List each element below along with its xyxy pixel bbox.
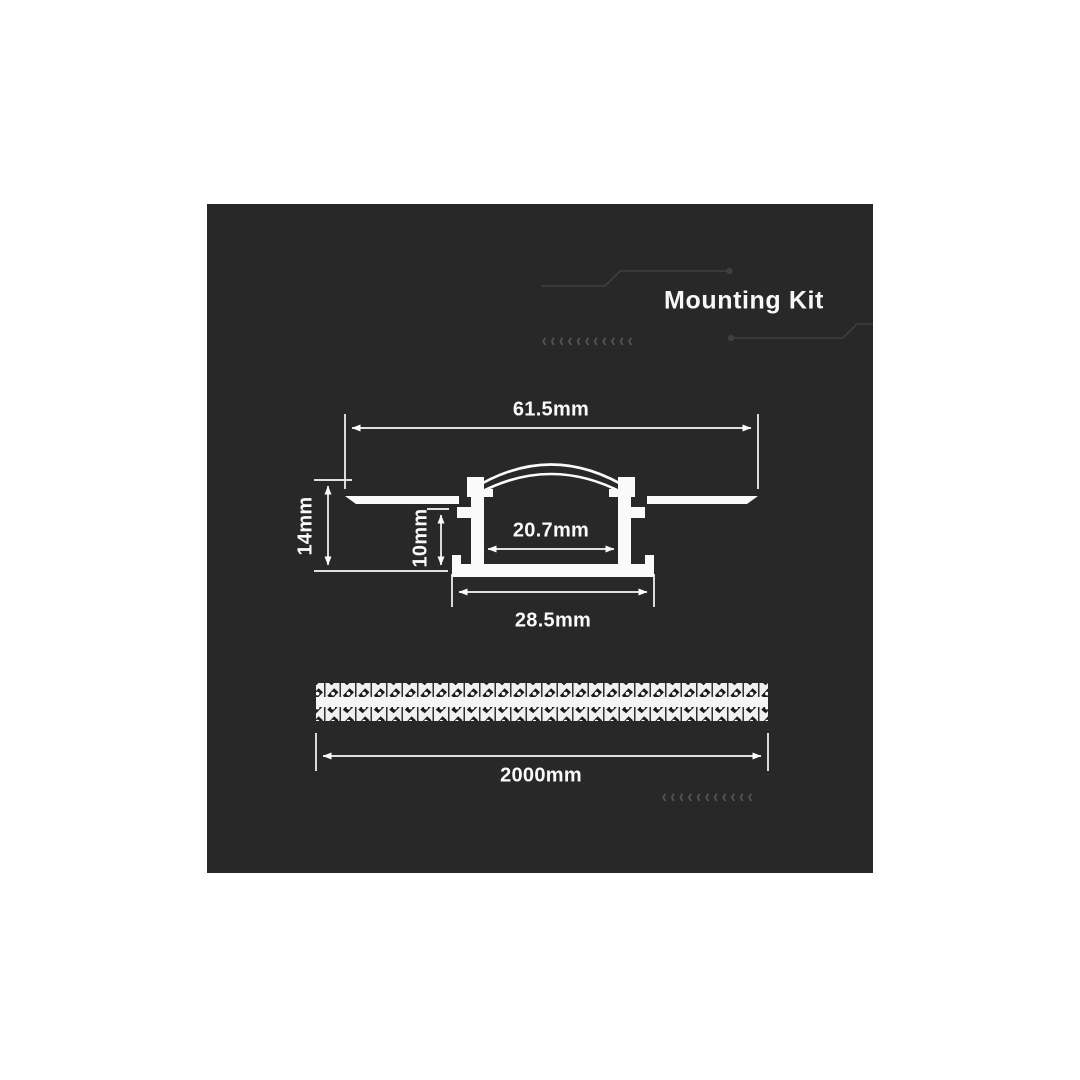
led-strip [316,683,768,721]
circuit-trace-top-icon [541,268,733,286]
dim-strip-length: 2000mm [500,765,582,788]
dim-base-width: 28.5mm [515,610,591,633]
dim-overall-width: 61.5mm [513,399,589,422]
dim-inner-width: 20.7mm [513,520,589,543]
product-image: Mounting Kit ‹‹‹‹‹‹‹‹‹‹‹ ‹‹‹‹‹‹‹‹‹‹‹ 61.… [0,0,1080,1080]
diffuser-dome [471,465,631,494]
chevron-decoration-top-icon: ‹‹‹‹‹‹‹‹‹‹‹ [542,330,637,351]
dim-overall-height: 14mm [295,496,318,555]
chevron-decoration-bottom-icon: ‹‹‹‹‹‹‹‹‹‹‹ [662,786,757,807]
page-title: Mounting Kit [664,287,824,316]
dim-inner-height: 10mm [410,508,433,567]
circuit-trace-right-icon [728,324,873,341]
